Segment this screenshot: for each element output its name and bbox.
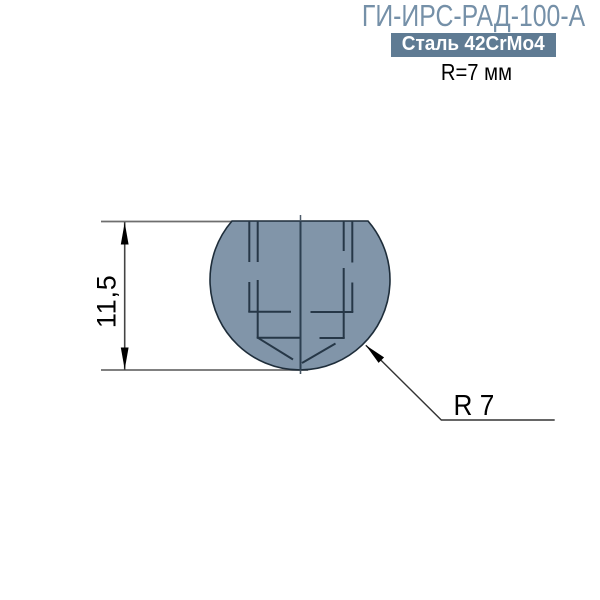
svg-text:R 7: R 7 — [454, 389, 495, 421]
svg-text:11,5: 11,5 — [91, 274, 121, 328]
